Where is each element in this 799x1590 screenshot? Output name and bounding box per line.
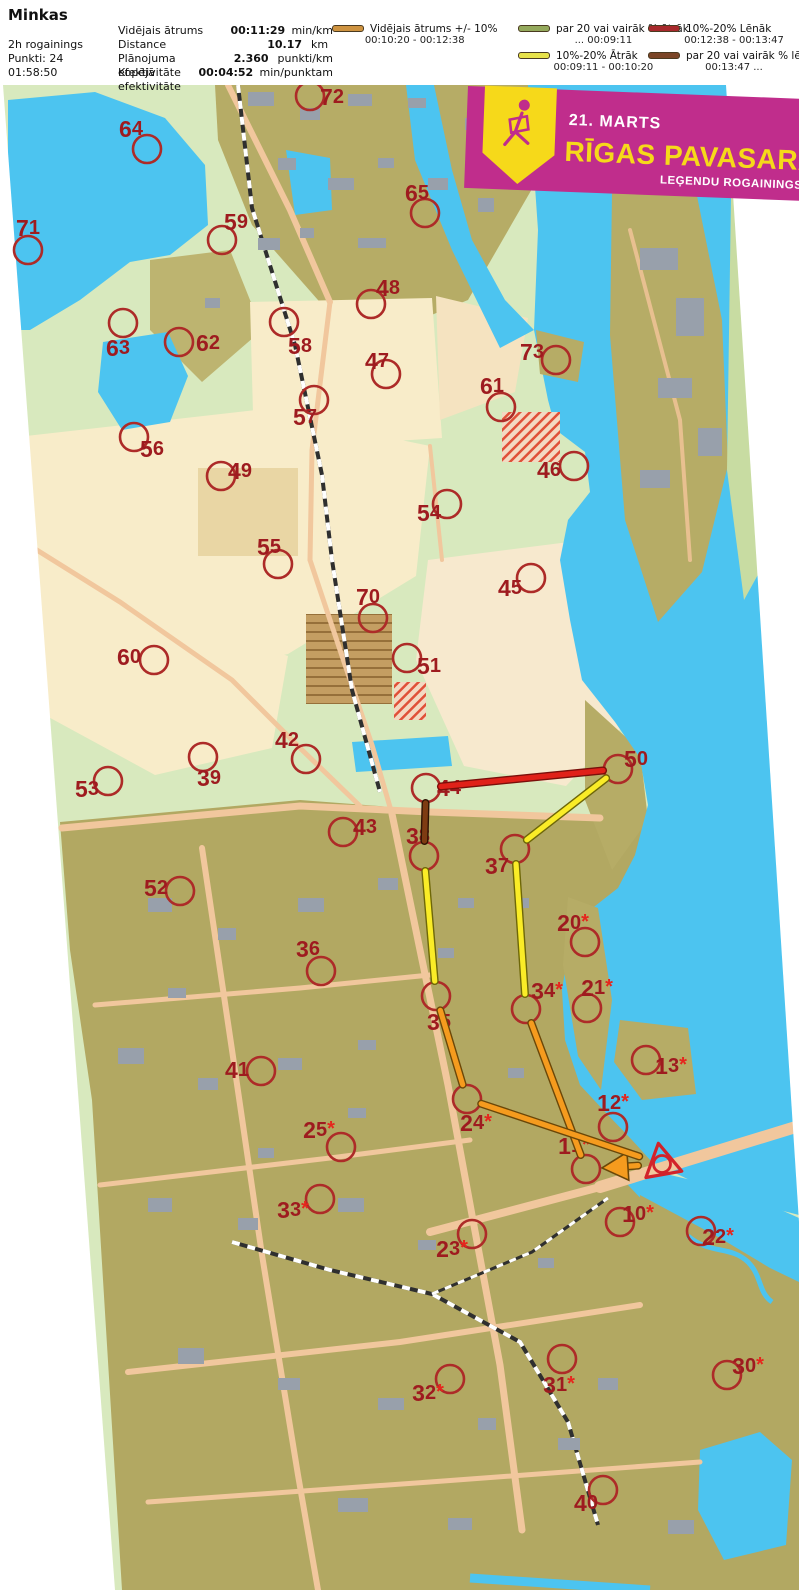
building [408, 98, 426, 108]
banner-date: 21. MARTS [568, 112, 661, 133]
control-label: 57 [293, 404, 317, 430]
stat-value: 2.360 [226, 52, 269, 66]
control-label: 10* [622, 1201, 654, 1227]
legend-column: 10%-20% Lēnāk00:12:38 - 00:13:47par 20 v… [648, 22, 799, 76]
legend-label: par 20 vai vairāk % lēnāk [686, 50, 799, 62]
building [676, 298, 704, 336]
control-label: 50 [624, 746, 648, 772]
stat-label: Vidējais ātrums [118, 24, 230, 38]
control-label: 31* [543, 1372, 575, 1398]
legend-color-line [518, 52, 550, 59]
building [258, 238, 280, 250]
control-label: 48 [376, 275, 400, 301]
control-label: 39 [197, 765, 221, 791]
control-label: 25* [303, 1117, 335, 1143]
control-label: 32* [412, 1380, 444, 1406]
event-banner: 21. MARTS RĪGAS PAVASARA LEĢENDU ROGAINI… [464, 85, 799, 201]
building [658, 378, 692, 398]
control-label: 13* [655, 1053, 687, 1079]
control-label: 22* [702, 1224, 734, 1250]
building [418, 1240, 436, 1250]
control-label: 71 [16, 215, 40, 241]
building [508, 1068, 524, 1078]
stat-unit: min/km [291, 24, 333, 38]
building [478, 1418, 496, 1430]
building [640, 248, 678, 270]
stat-row: Distance10.17km [118, 38, 333, 52]
building [300, 228, 314, 238]
control-label: 55 [257, 534, 281, 560]
building [640, 470, 670, 488]
control-label: 20* [557, 910, 589, 936]
control-label: 61 [480, 373, 504, 399]
control-label: 65 [405, 180, 429, 206]
building [378, 158, 394, 168]
building [338, 1498, 368, 1512]
legend-range: 00:10:20 - 00:12:38 [332, 35, 497, 47]
control-label: 40 [574, 1490, 598, 1516]
control-label: 54 [417, 500, 442, 526]
stat-row: Vidējais ātrums00:11:29min/km [118, 24, 333, 38]
building [238, 1218, 258, 1230]
legend-item: 10%-20% Lēnāk00:12:38 - 00:13:47 [648, 22, 799, 47]
total-time: 01:58:50 [8, 66, 57, 79]
control-label: 21* [581, 975, 613, 1001]
building [378, 878, 398, 890]
legend-item: par 20 vai vairāk % lēnāk00:13:47 ... [648, 49, 799, 74]
control-label: 60 [117, 644, 141, 670]
building [538, 1258, 554, 1268]
building [438, 948, 454, 958]
building [598, 1378, 618, 1390]
control-label: 45 [498, 575, 522, 601]
control-label: 49 [228, 458, 252, 484]
building [558, 1438, 580, 1450]
legend-color-line [518, 25, 550, 32]
building [178, 1348, 204, 1364]
control-label: 52 [144, 875, 168, 901]
building [298, 898, 324, 912]
control-label: 62 [196, 330, 220, 356]
building [698, 428, 722, 456]
control-label: 53 [75, 776, 99, 802]
building [338, 1198, 364, 1212]
legend-color-line [332, 25, 364, 32]
building [278, 1378, 300, 1390]
building [458, 898, 474, 908]
stats-table: Vidējais ātrums00:11:29min/kmDistance10.… [118, 24, 333, 80]
control-label: 46 [537, 457, 561, 483]
building [148, 1198, 172, 1212]
header: Minkas 2h rogainings Punkti: 24 01:58:50… [0, 0, 799, 85]
legend-label: 10%-20% Lēnāk [686, 23, 771, 35]
building [205, 298, 220, 308]
stat-unit: punkti/km [278, 52, 333, 66]
control-label: 37 [485, 853, 509, 879]
control-label: 73 [520, 339, 544, 365]
page-title: Minkas [8, 6, 68, 24]
stat-label: Plānojuma efektivitāte [118, 52, 226, 66]
building [198, 1078, 218, 1090]
building [448, 1518, 472, 1530]
building [358, 238, 386, 248]
control-label: 51 [417, 653, 441, 679]
control-label: 72 [320, 85, 344, 110]
stat-row: Kopējā efektivitāte00:04:52min/punktam [118, 66, 333, 80]
map: 7264657159486362584773615756494654554570… [0, 85, 799, 1590]
legend-label: 10%-20% Ātrāk [556, 50, 638, 62]
legend-color-line [648, 52, 680, 59]
stat-unit: min/punktam [259, 66, 333, 80]
building [668, 1520, 694, 1534]
control-label: 41 [225, 1057, 249, 1083]
stat-label: Distance [118, 38, 250, 52]
control-label: 63 [106, 335, 130, 361]
building [358, 1040, 376, 1050]
control-label: 12* [597, 1090, 629, 1116]
stat-label: Kopējā efektivitāte [118, 66, 198, 80]
building [428, 178, 448, 190]
legend-item: Vidējais ātrums +/- 10%00:10:20 - 00:12:… [332, 22, 497, 47]
stat-unit: km [311, 38, 328, 52]
control-label: 42 [275, 727, 299, 753]
event-type: 2h rogainings [8, 38, 83, 51]
building [348, 94, 372, 106]
route-leg-44-38 [424, 803, 425, 841]
legend-column: Vidējais ātrums +/- 10%00:10:20 - 00:12:… [332, 22, 497, 49]
control-label: 59 [224, 209, 248, 235]
control-label: 24* [460, 1110, 492, 1136]
building [118, 1048, 144, 1064]
control-label: 36 [296, 936, 320, 962]
control-label: 58 [288, 333, 312, 359]
control-label: 33* [277, 1197, 309, 1223]
control-label: 23* [436, 1236, 468, 1262]
legend-range: 00:12:38 - 00:13:47 [648, 35, 799, 47]
stat-value: 00:04:52 [198, 66, 250, 80]
stat-value: 00:11:29 [230, 24, 282, 38]
building [378, 1398, 404, 1410]
stat-row: Plānojuma efektivitāte2.360punkti/km [118, 52, 333, 66]
control-label: 30* [732, 1353, 764, 1379]
building [258, 1148, 274, 1158]
legend-range: 00:13:47 ... [648, 62, 799, 74]
control-label: 34* [531, 978, 563, 1004]
building [328, 178, 354, 190]
control-label: 47 [365, 348, 389, 374]
building [248, 92, 274, 106]
control-label: 70 [356, 584, 380, 610]
points-total: Punkti: 24 [8, 52, 63, 65]
building [168, 988, 186, 998]
control-label: 64 [119, 116, 144, 142]
building [478, 198, 494, 212]
building [218, 928, 236, 940]
control-label: 43 [353, 814, 377, 840]
legend-label: Vidējais ātrums +/- 10% [370, 23, 497, 35]
building [278, 1058, 302, 1070]
control-label: 56 [140, 436, 164, 462]
building [278, 158, 296, 170]
legend-color-line [648, 25, 680, 32]
building [348, 1108, 366, 1118]
stat-value: 10.17 [250, 38, 302, 52]
